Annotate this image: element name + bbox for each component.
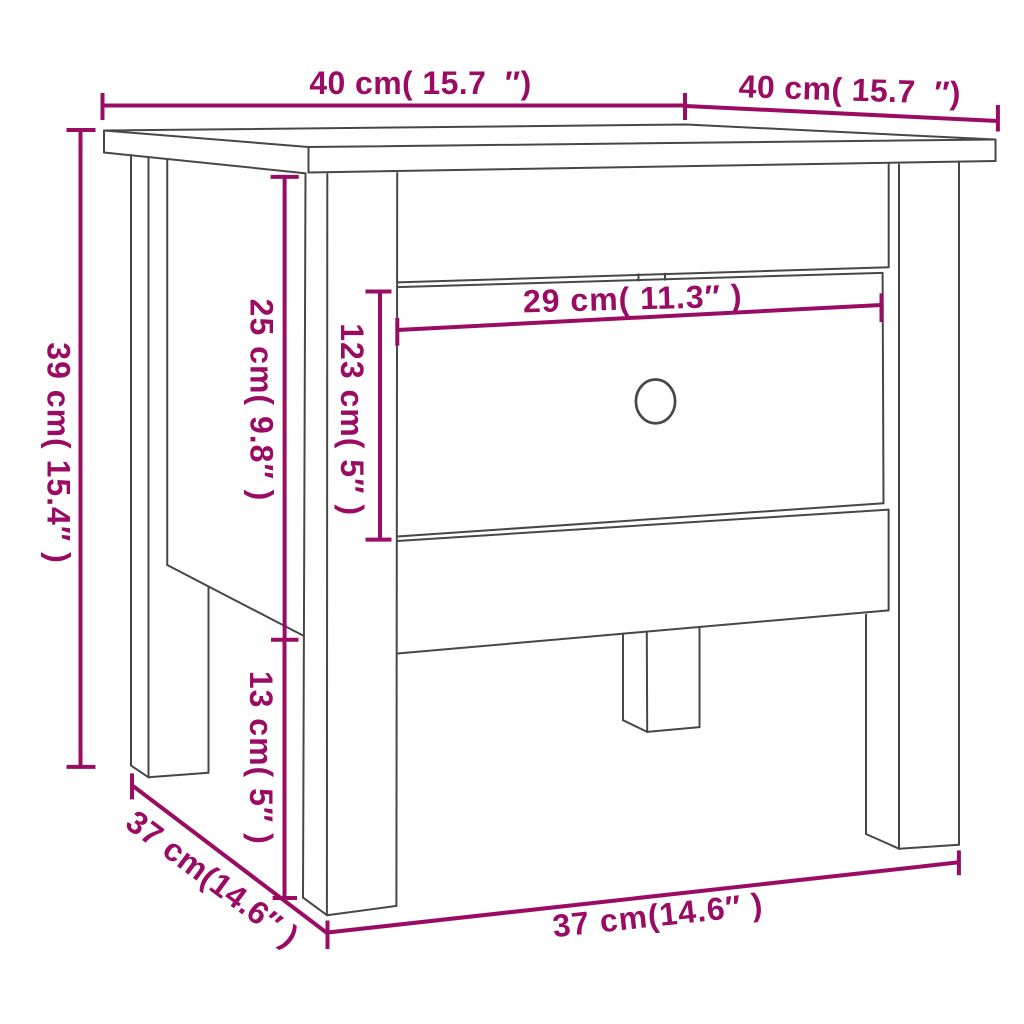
svg-text:123 cm( 5″ ): 123 cm( 5″ ) [334,323,370,516]
svg-text:40 cm( 15.7 ″): 40 cm( 15.7 ″) [309,65,531,101]
svg-text:25 cm( 9.8″ ): 25 cm( 9.8″ ) [244,299,280,502]
svg-text:40 cm( 15.7 ″): 40 cm( 15.7 ″) [738,68,961,111]
svg-text:29 cm( 11.3″ ): 29 cm( 11.3″ ) [522,278,743,320]
svg-text:39 cm( 15.4″ ): 39 cm( 15.4″ ) [41,342,77,563]
svg-text:13 cm( 5″ ): 13 cm( 5″ ) [243,671,279,845]
